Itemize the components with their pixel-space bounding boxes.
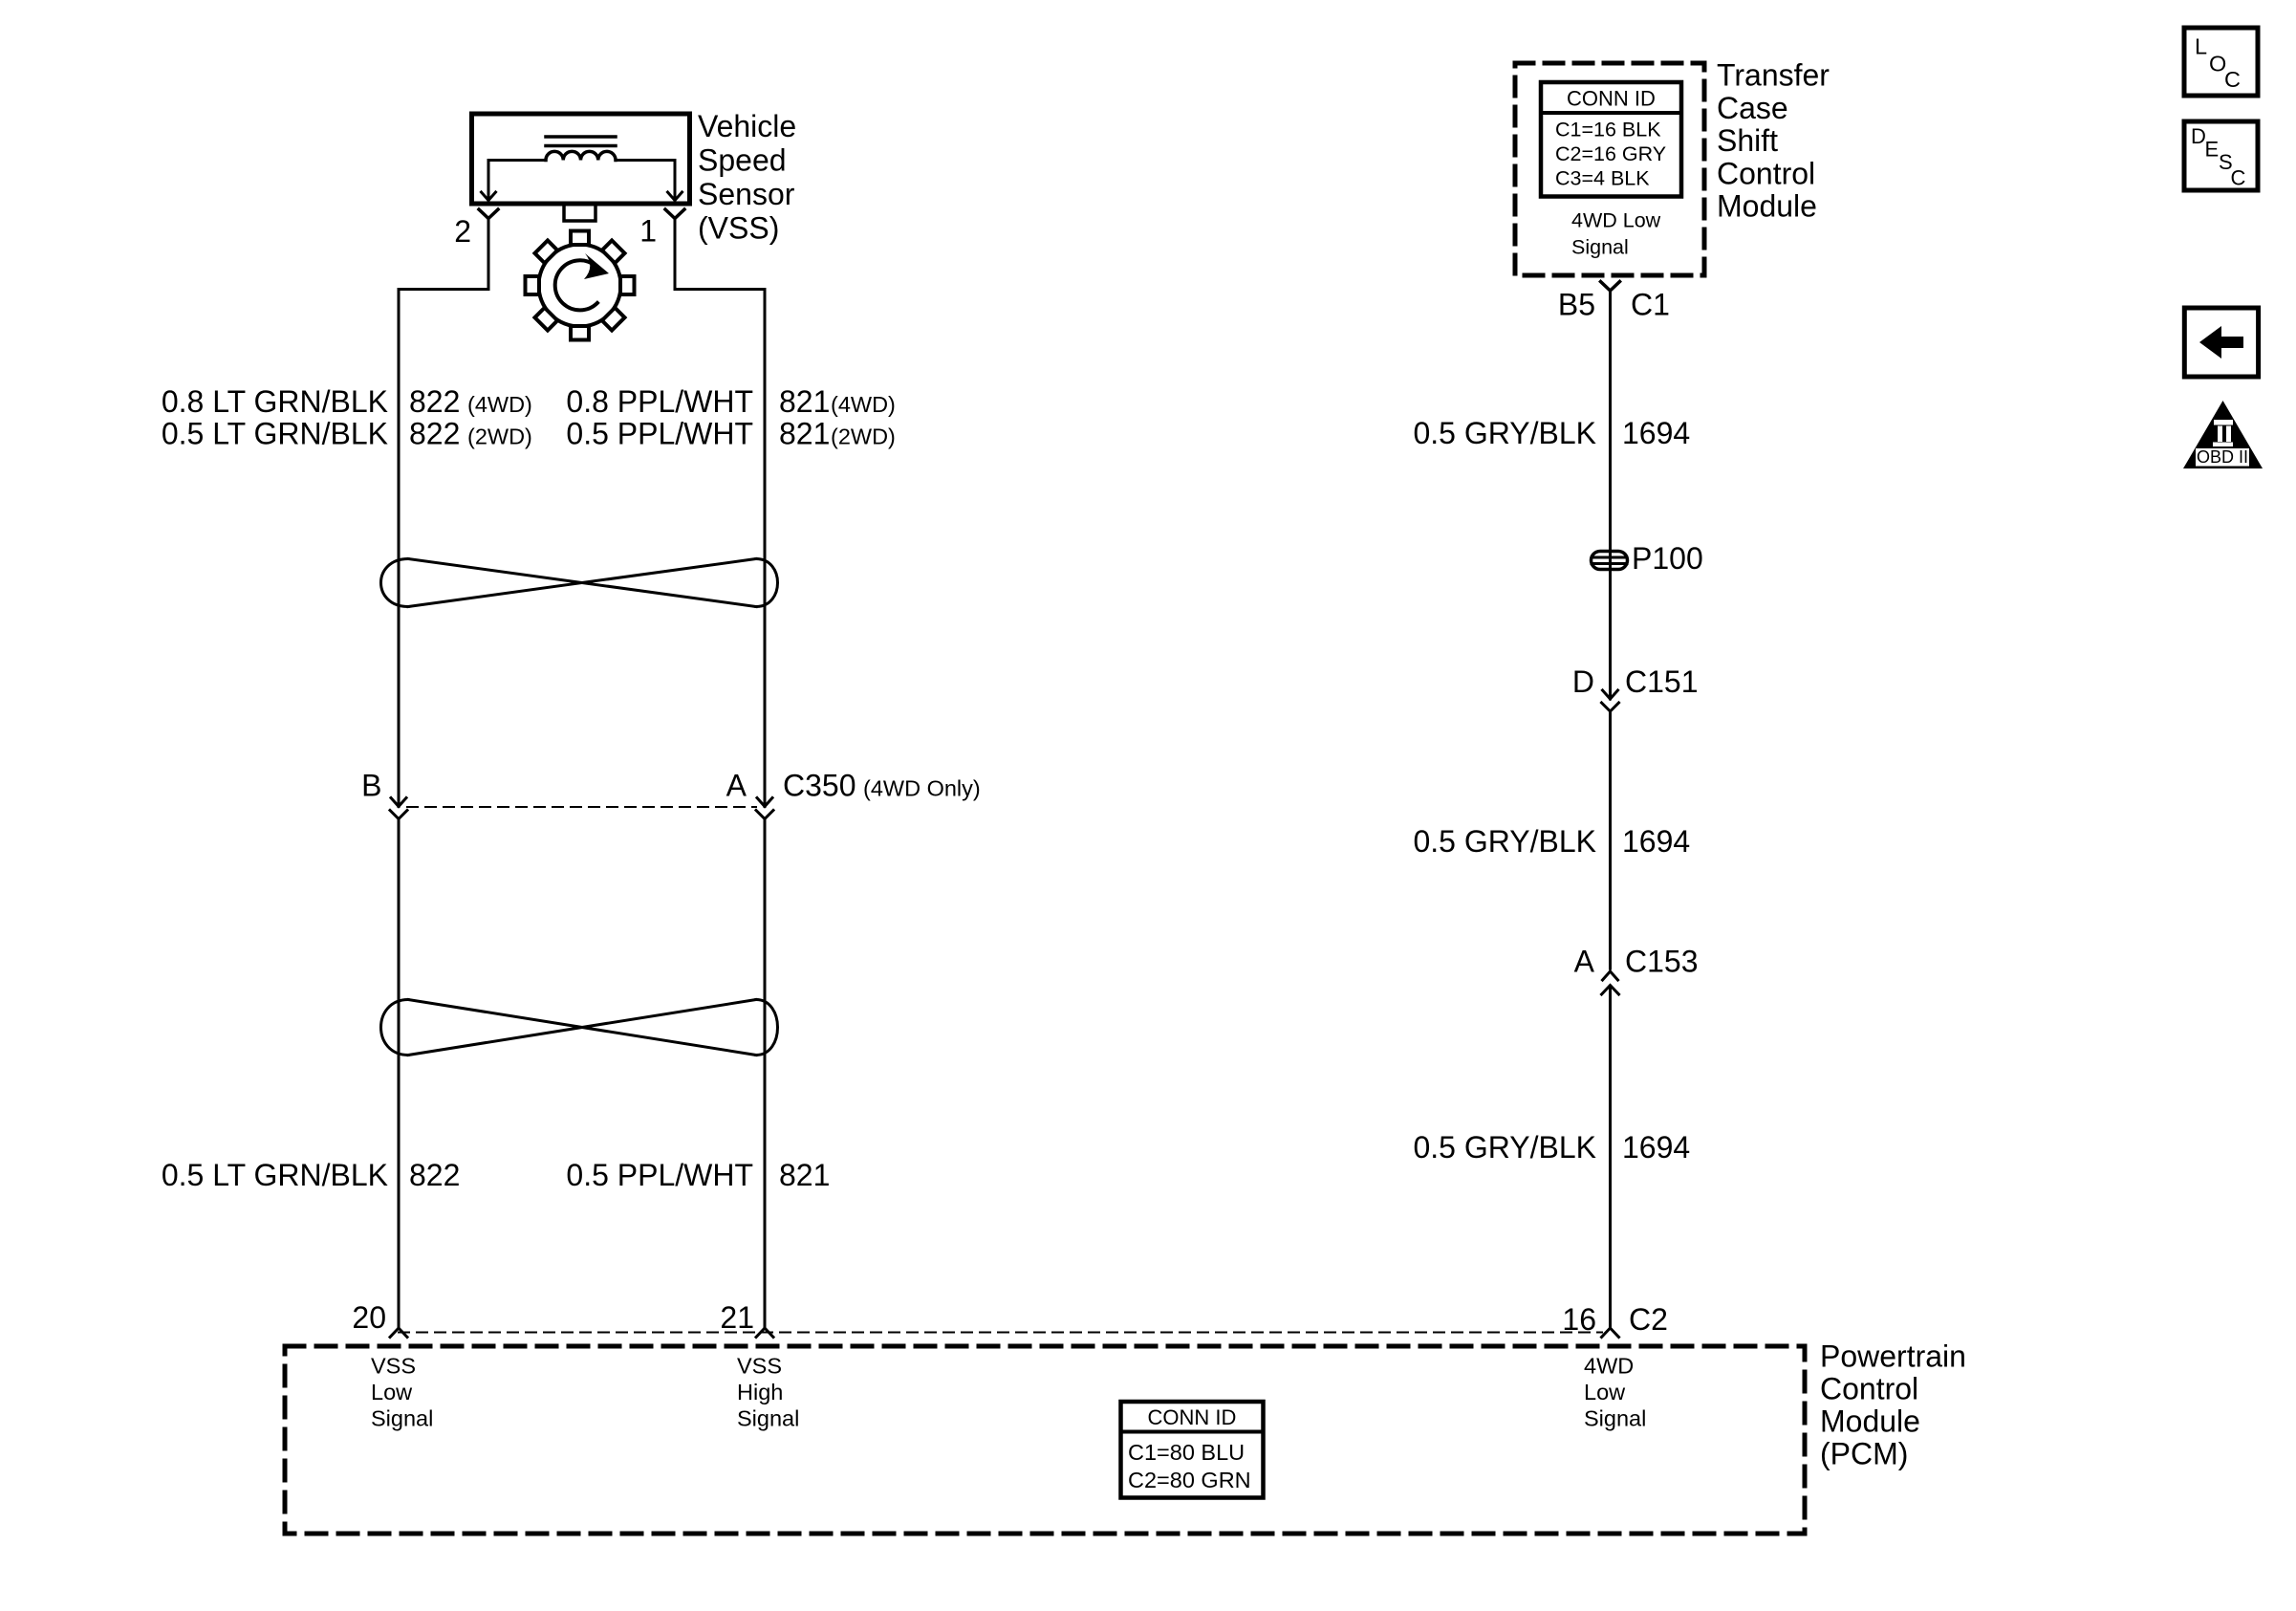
svg-text:(PCM): (PCM): [1820, 1437, 1908, 1471]
svg-text:0.8 PPL/WHT: 0.8 PPL/WHT: [566, 384, 753, 419]
svg-text:4WD: 4WD: [1584, 1354, 1634, 1379]
svg-text:822: 822: [409, 1158, 460, 1192]
svg-text:CONN ID: CONN ID: [1148, 1405, 1237, 1429]
svg-text:C: C: [2224, 67, 2241, 92]
svg-text:C2=80 GRN: C2=80 GRN: [1128, 1468, 1251, 1492]
svg-text:CONN ID: CONN ID: [1567, 87, 1656, 111]
svg-text:(VSS): (VSS): [698, 211, 779, 246]
svg-text:4WD Low: 4WD Low: [1571, 209, 1661, 232]
svg-text:Speed: Speed: [698, 143, 787, 178]
svg-text:D: D: [1572, 664, 1594, 699]
svg-text:Signal: Signal: [1571, 236, 1629, 259]
svg-text:Powertrain: Powertrain: [1820, 1339, 1966, 1374]
svg-text:Sensor: Sensor: [698, 177, 795, 211]
svg-text:B5: B5: [1558, 288, 1595, 322]
svg-text:Module: Module: [1717, 189, 1817, 224]
svg-text:Module: Module: [1820, 1404, 1920, 1439]
svg-text:Control: Control: [1820, 1372, 1918, 1406]
svg-text:High: High: [737, 1380, 783, 1404]
svg-text:C2: C2: [1629, 1302, 1668, 1337]
svg-text:L: L: [2195, 34, 2207, 59]
svg-text:Shift: Shift: [1717, 123, 1778, 158]
svg-text:B: B: [361, 769, 381, 803]
svg-text:C2=16 GRY: C2=16 GRY: [1555, 142, 1666, 165]
svg-text:0.5 LT GRN/BLK: 0.5 LT GRN/BLK: [162, 1158, 388, 1192]
svg-text:(4WD): (4WD): [831, 392, 896, 417]
svg-text:Signal: Signal: [1584, 1406, 1646, 1431]
svg-text:Low: Low: [1584, 1380, 1626, 1404]
svg-text:C151: C151: [1625, 664, 1699, 699]
svg-text:VSS: VSS: [371, 1354, 416, 1379]
svg-text:C1=80 BLU: C1=80 BLU: [1128, 1440, 1245, 1465]
svg-text:VSS: VSS: [737, 1354, 782, 1379]
svg-text:C3=4 BLK: C3=4 BLK: [1555, 167, 1650, 190]
svg-text:20: 20: [352, 1300, 386, 1335]
svg-text:Case: Case: [1717, 91, 1788, 125]
svg-text:821: 821: [779, 1158, 830, 1192]
svg-text:822: 822: [409, 417, 460, 451]
svg-text:1694: 1694: [1622, 824, 1690, 859]
svg-text:A: A: [726, 769, 747, 803]
svg-text:16: 16: [1562, 1302, 1596, 1337]
svg-text:2: 2: [454, 214, 471, 249]
svg-text:0.5 LT GRN/BLK: 0.5 LT GRN/BLK: [162, 417, 388, 451]
svg-text:1694: 1694: [1622, 416, 1690, 450]
svg-text:(2WD): (2WD): [831, 425, 896, 449]
svg-text:(2WD): (2WD): [467, 425, 532, 449]
svg-text:(4WD Only): (4WD Only): [863, 776, 981, 801]
svg-text:Vehicle: Vehicle: [698, 109, 796, 143]
svg-text:0.5 PPL/WHT: 0.5 PPL/WHT: [566, 417, 753, 451]
svg-text:OBD II: OBD II: [2197, 447, 2248, 467]
svg-text:1: 1: [639, 214, 657, 249]
svg-text:C1=16 BLK: C1=16 BLK: [1555, 119, 1661, 142]
svg-text:0.5 GRY/BLK: 0.5 GRY/BLK: [1413, 824, 1596, 859]
svg-text:0.8 LT GRN/BLK: 0.8 LT GRN/BLK: [162, 384, 388, 419]
svg-text:P100: P100: [1632, 541, 1703, 576]
svg-text:0.5 GRY/BLK: 0.5 GRY/BLK: [1413, 1130, 1596, 1165]
svg-text:Signal: Signal: [371, 1406, 433, 1431]
svg-text:(4WD): (4WD): [467, 392, 532, 417]
svg-text:1694: 1694: [1622, 1130, 1690, 1165]
svg-text:C350: C350: [783, 769, 856, 803]
svg-text:0.5 PPL/WHT: 0.5 PPL/WHT: [566, 1158, 753, 1192]
svg-text:0.5 GRY/BLK: 0.5 GRY/BLK: [1413, 416, 1596, 450]
svg-text:D: D: [2191, 124, 2206, 148]
svg-text:Low: Low: [371, 1380, 413, 1404]
svg-text:C1: C1: [1631, 288, 1670, 322]
svg-text:821: 821: [779, 417, 830, 451]
svg-text:Control: Control: [1717, 156, 1815, 190]
svg-text:822: 822: [409, 384, 460, 419]
svg-text:C: C: [2231, 165, 2246, 189]
svg-text:C153: C153: [1625, 945, 1699, 979]
svg-text:Transfer: Transfer: [1717, 58, 1830, 93]
svg-text:Signal: Signal: [737, 1406, 799, 1431]
svg-text:21: 21: [720, 1300, 754, 1335]
svg-text:E: E: [2205, 137, 2220, 161]
svg-text:821: 821: [779, 384, 830, 419]
svg-text:A: A: [1574, 945, 1595, 979]
